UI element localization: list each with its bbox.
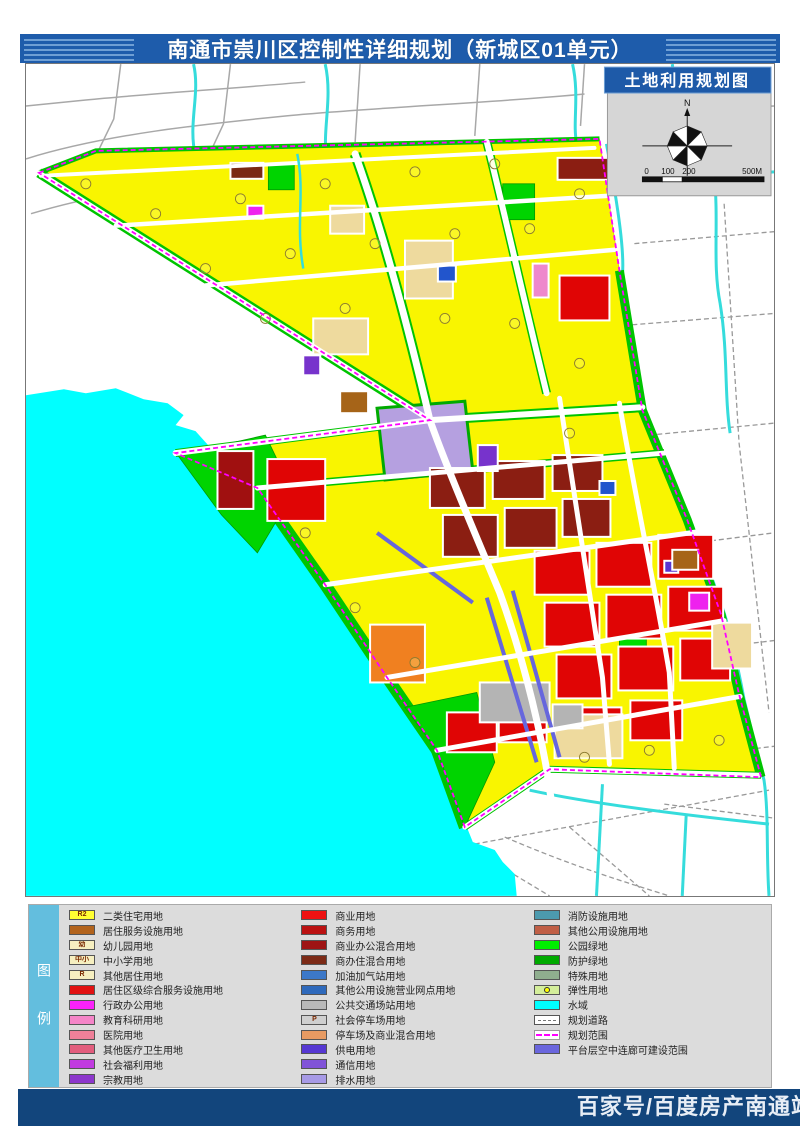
legend-swatch — [301, 925, 327, 935]
legend-columns: R2二类住宅用地居住服务设施用地幼幼儿园用地中小中小学用地R其他居住用地居住区级… — [69, 908, 767, 1085]
legend-swatch — [534, 1015, 560, 1025]
legend-item: 居住服务设施用地 — [69, 923, 301, 938]
legend-swatch — [534, 985, 560, 995]
legend-item: 中小中小学用地 — [69, 953, 301, 968]
legend-swatch — [69, 925, 95, 935]
legend-item-label: 其他居住用地 — [103, 968, 163, 983]
legend-item: 消防设施用地 — [534, 908, 766, 923]
legend-item-label: 公共交通场站用地 — [335, 997, 415, 1012]
legend-item: 居住区级综合服务设施用地 — [69, 982, 301, 997]
legend-item-label: 其他公用设施用地 — [568, 923, 648, 938]
legend-swatch — [69, 1059, 95, 1069]
legend-item-label: 社会福利用地 — [103, 1057, 163, 1072]
legend-swatch: 中小 — [69, 955, 95, 965]
legend-item: 加油加气站用地 — [301, 968, 533, 983]
legend-item: 停车场及商业混合用地 — [301, 1027, 533, 1042]
legend-item-label: 中小学用地 — [103, 953, 153, 968]
legend-swatch: R — [69, 970, 95, 980]
page-title: 南通市崇川区控制性详细规划（新城区01单元） — [167, 34, 632, 64]
legend-item-label: 居住服务设施用地 — [103, 923, 183, 938]
legend-item-label: 规划道路 — [568, 1012, 608, 1027]
legend-item-label: 宗教用地 — [103, 1072, 143, 1087]
legend-item: 其他公用设施营业网点用地 — [301, 982, 533, 997]
legend-item: 排水用地 — [301, 1072, 533, 1087]
legend-item: 商业用地 — [301, 908, 533, 923]
legend-swatch — [534, 910, 560, 920]
legend-swatch — [534, 970, 560, 980]
legend-swatch — [534, 1000, 560, 1010]
legend-item: 医院用地 — [69, 1027, 301, 1042]
legend-item-label: 排水用地 — [335, 1072, 375, 1087]
legend-item: 幼幼儿园用地 — [69, 938, 301, 953]
legend-item-label: 防护绿地 — [568, 953, 608, 968]
svg-text:0: 0 — [644, 167, 649, 176]
legend-swatch — [301, 970, 327, 980]
legend-item: 商业办公混合用地 — [301, 938, 533, 953]
legend-item: 水域 — [534, 997, 766, 1012]
legend-item: 其他医疗卫生用地 — [69, 1042, 301, 1057]
legend-item-label: 二类住宅用地 — [103, 908, 163, 923]
legend-item: 平台层空中连廊可建设范围 — [534, 1042, 766, 1057]
legend-column-1: R2二类住宅用地居住服务设施用地幼幼儿园用地中小中小学用地R其他居住用地居住区级… — [69, 908, 301, 1085]
legend-item-label: 平台层空中连廊可建设范围 — [568, 1042, 688, 1057]
legend-swatch — [301, 1030, 327, 1040]
legend-item: 特殊用地 — [534, 968, 766, 983]
footer-attribution: 百家号/百度房产南通站 — [577, 1089, 800, 1121]
legend-item: 公园绿地 — [534, 938, 766, 953]
map-canvas: 土地利用规划图 N 0 100 200 500M — [26, 64, 774, 896]
legend-item-label: 通信用地 — [335, 1057, 375, 1072]
legend-item: 其他公用设施用地 — [534, 923, 766, 938]
legend-item: 商务用地 — [301, 923, 533, 938]
legend-item-label: 规划范围 — [568, 1027, 608, 1042]
legend-swatch: R2 — [69, 910, 95, 920]
legend-item-label: 幼儿园用地 — [103, 938, 153, 953]
legend-item-label: 居住区级综合服务设施用地 — [103, 982, 223, 997]
legend-item-label: 其他医疗卫生用地 — [103, 1042, 183, 1057]
legend-swatch: 幼 — [69, 940, 95, 950]
legend-item: P社会停车场用地 — [301, 1012, 533, 1027]
legend-sidebar-label: 图例 — [29, 905, 59, 1087]
legend-item-label: 医院用地 — [103, 1027, 143, 1042]
legend-item: 防护绿地 — [534, 953, 766, 968]
legend-swatch — [69, 1074, 95, 1084]
legend-swatch — [301, 910, 327, 920]
legend-item: 社会福利用地 — [69, 1057, 301, 1072]
svg-text:500M: 500M — [742, 167, 762, 176]
legend-item-label: 消防设施用地 — [568, 908, 628, 923]
legend-item-label: 教育科研用地 — [103, 1012, 163, 1027]
land-use-map: 土地利用规划图 N 0 100 200 500M — [25, 63, 775, 897]
legend-swatch — [301, 1059, 327, 1069]
legend-item-label: 行政办公用地 — [103, 997, 163, 1012]
legend-swatch — [69, 985, 95, 995]
svg-text:200: 200 — [682, 167, 696, 176]
svg-text:100: 100 — [661, 167, 675, 176]
legend-panel: 图例 R2二类住宅用地居住服务设施用地幼幼儿园用地中小中小学用地R其他居住用地居… — [28, 904, 772, 1088]
legend-item-label: 社会停车场用地 — [335, 1012, 405, 1027]
legend-swatch — [534, 925, 560, 935]
legend-swatch — [301, 955, 327, 965]
legend-item-label: 公园绿地 — [568, 938, 608, 953]
legend-item: R其他居住用地 — [69, 968, 301, 983]
legend-swatch — [301, 1044, 327, 1054]
legend-column-3: 消防设施用地其他公用设施用地公园绿地防护绿地特殊用地弹性用地水域规划道路规划范围… — [534, 908, 766, 1085]
legend-swatch — [69, 1015, 95, 1025]
legend-item: 供电用地 — [301, 1042, 533, 1057]
legend-swatch — [301, 1000, 327, 1010]
legend-swatch — [69, 1000, 95, 1010]
legend-item-label: 商业办公混合用地 — [335, 938, 415, 953]
legend-item-label: 特殊用地 — [568, 968, 608, 983]
legend-item: 通信用地 — [301, 1057, 533, 1072]
legend-swatch — [301, 1074, 327, 1084]
map-inset: 土地利用规划图 N 0 100 200 500M — [604, 67, 771, 196]
legend-item: 教育科研用地 — [69, 1012, 301, 1027]
legend-swatch — [69, 1044, 95, 1054]
map-banner-title: 土地利用规划图 — [624, 71, 750, 90]
north-label: N — [684, 98, 690, 108]
legend-item-label: 其他公用设施营业网点用地 — [335, 982, 455, 997]
legend-item: 宗教用地 — [69, 1072, 301, 1087]
legend-item: R2二类住宅用地 — [69, 908, 301, 923]
legend-item-label: 水域 — [568, 997, 588, 1012]
legend-item-label: 商办住混合用地 — [335, 953, 405, 968]
legend-column-2: 商业用地商务用地商业办公混合用地商办住混合用地加油加气站用地其他公用设施营业网点… — [301, 908, 533, 1085]
legend-item-label: 商务用地 — [335, 923, 375, 938]
title-bar-stripes-left — [24, 36, 134, 61]
legend-item: 行政办公用地 — [69, 997, 301, 1012]
legend-item: 规划范围 — [534, 1027, 766, 1042]
footer-bar: 百家号/百度房产南通站 — [18, 1089, 800, 1126]
legend-swatch — [534, 1044, 560, 1054]
legend-item: 商办住混合用地 — [301, 953, 533, 968]
legend-item: 公共交通场站用地 — [301, 997, 533, 1012]
legend-swatch — [301, 940, 327, 950]
legend-item-label: 加油加气站用地 — [335, 968, 405, 983]
legend-item-label: 停车场及商业混合用地 — [335, 1027, 435, 1042]
legend-item-label: 供电用地 — [335, 1042, 375, 1057]
legend-swatch — [534, 1030, 560, 1040]
legend-swatch: P — [301, 1015, 327, 1025]
legend-swatch — [301, 985, 327, 995]
title-bar: 南通市崇川区控制性详细规划（新城区01单元） — [20, 34, 780, 63]
legend-item-label: 弹性用地 — [568, 982, 608, 997]
legend-swatch — [534, 955, 560, 965]
legend-swatch — [534, 940, 560, 950]
legend-item-label: 商业用地 — [335, 908, 375, 923]
legend-item: 弹性用地 — [534, 982, 766, 997]
legend-item: 规划道路 — [534, 1012, 766, 1027]
legend-swatch — [69, 1030, 95, 1040]
title-bar-stripes-right — [666, 36, 776, 61]
